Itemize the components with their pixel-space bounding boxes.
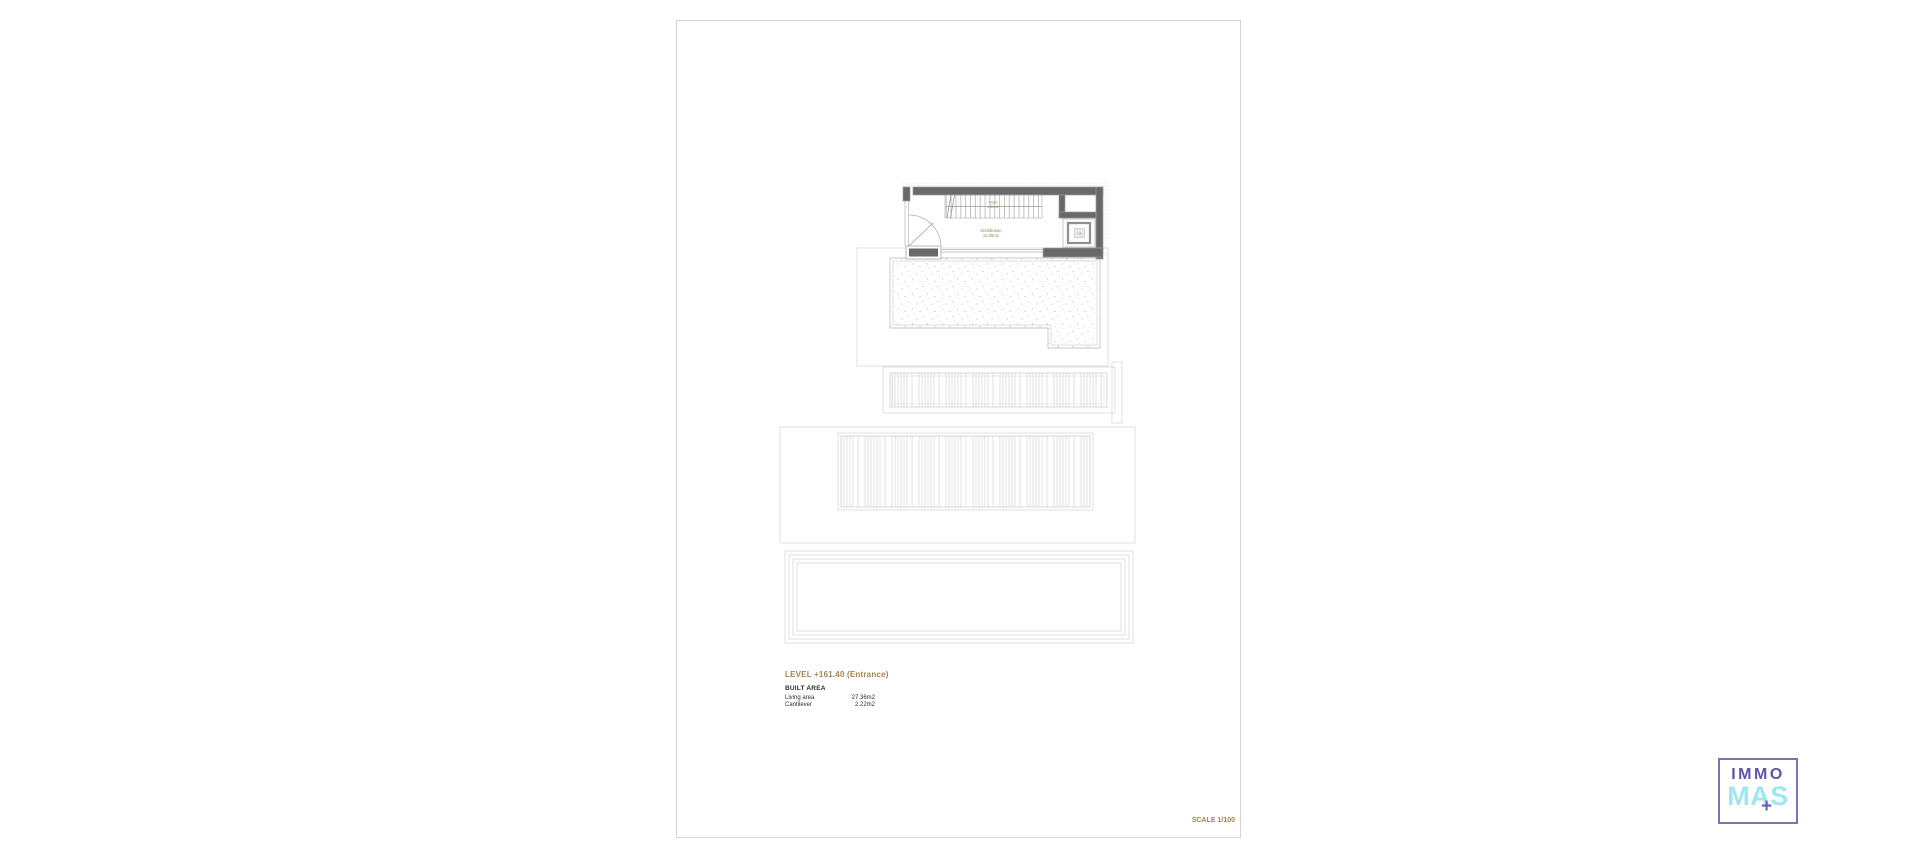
wall-top-left-pier — [903, 187, 910, 201]
logo-line2: MAS — [1720, 784, 1796, 809]
logo-plus-icon: + — [1761, 796, 1772, 818]
built-area-row: Living area 27.36m2 — [785, 695, 875, 703]
wall-top — [913, 187, 1103, 195]
built-area-row: Cantilever 2.22m2 — [785, 702, 875, 710]
screenshot-root: Stairs 4.85m2 Distribution 12.05m2 Lift … — [0, 0, 1920, 860]
floor-plan-drawing: Stairs 4.85m2 Distribution 12.05m2 Lift — [660, 150, 1260, 710]
louver-band-lower — [841, 436, 1090, 507]
door-swing — [909, 215, 941, 247]
level-title: LEVEL +161.40 (Entrance) — [785, 670, 889, 679]
wall-bottom-left-pier — [909, 249, 938, 257]
built-area-heading: BUILT AREA — [785, 685, 875, 692]
area-value: 2.22m2 — [855, 702, 875, 710]
area-label: Living area — [785, 695, 814, 703]
built-area-block: BUILT AREA Living area 27.36m2 Cantileve… — [785, 685, 875, 710]
immo-mas-logo: IMMO MAS + — [1718, 758, 1798, 824]
lift-label: Lift — [1077, 231, 1081, 235]
wall-room-horizontal — [1059, 212, 1096, 218]
scale-label: SCALE 1/100 — [1135, 817, 1235, 824]
distribution-area-label: 12.05m2 — [983, 233, 1000, 238]
louver-band-upper — [890, 373, 1107, 407]
area-label: Cantilever — [785, 702, 812, 710]
wall-bottom-right — [1043, 248, 1103, 257]
stairs-area-label: 4.85m2 — [987, 205, 999, 209]
terrace-stipple — [890, 258, 1100, 348]
area-value: 27.36m2 — [852, 695, 875, 703]
pool-outline — [785, 551, 1133, 643]
